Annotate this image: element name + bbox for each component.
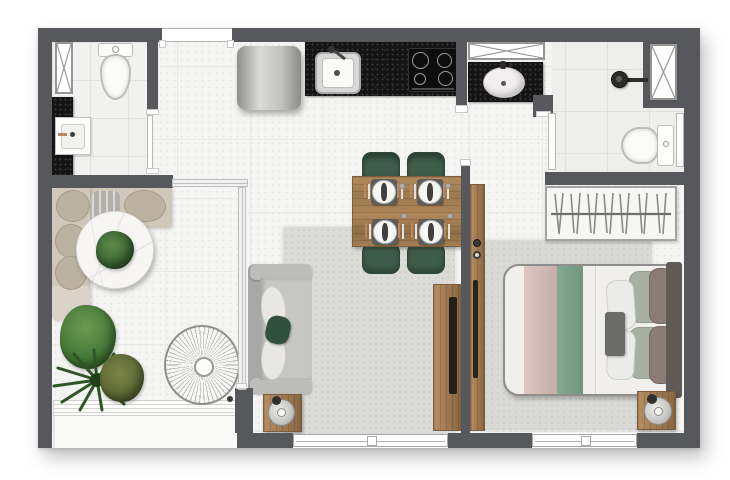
wall-kitchen-end (456, 28, 467, 112)
dining-chair (362, 243, 400, 274)
flush-button (112, 46, 119, 53)
wall-top-left (38, 28, 162, 42)
wardrobe-knob (473, 251, 481, 259)
entry-door-opening (162, 28, 232, 42)
cup (401, 213, 407, 219)
lamp-cap (272, 396, 281, 405)
burner (438, 71, 453, 86)
flush-button-2 (663, 141, 669, 147)
wall-balcony-top (38, 175, 173, 188)
glass-partition-v (238, 187, 246, 390)
balcony-ledge (53, 416, 237, 448)
bath2-service-door (676, 113, 684, 167)
lamp-core (654, 407, 663, 416)
bedroom-window (532, 434, 637, 447)
bath1-faucet (58, 133, 67, 136)
cup (399, 183, 405, 189)
burner (414, 73, 426, 85)
lamp-core (277, 408, 286, 417)
bath1-door (147, 115, 153, 169)
closet-rack (545, 186, 677, 241)
wall-bath2-bottom (545, 172, 684, 185)
cutlery (417, 179, 443, 205)
floor-plan (0, 0, 730, 480)
wall-stub-balcony (235, 388, 253, 433)
door-jamb (159, 40, 166, 48)
wire-lounge-chair (164, 325, 240, 405)
sofa-armrest (250, 378, 312, 394)
cup (447, 213, 453, 219)
vent-shaft-2 (650, 44, 677, 100)
wardrobe-slot (473, 280, 478, 378)
cooktop-controls (412, 88, 454, 90)
sink-drain (334, 70, 340, 76)
shower-arm (626, 78, 648, 82)
cutlery (372, 219, 398, 245)
vanity-faucet (500, 61, 506, 69)
tv-screen-slot (449, 297, 457, 394)
bath1-drain (70, 132, 75, 137)
dining-chair (407, 243, 445, 274)
headboard (666, 262, 682, 398)
living-window (293, 434, 448, 447)
burner (437, 53, 452, 68)
cutlery (371, 179, 397, 205)
bath2-door (548, 113, 556, 170)
wall-left (38, 28, 52, 448)
glass-cap (236, 383, 247, 389)
toilet2-bowl (621, 127, 659, 164)
shower-head-center (616, 76, 622, 82)
table-plant (96, 231, 134, 269)
wall-cap (460, 159, 471, 166)
potted-plant-olive (100, 354, 144, 402)
bed-stripe-green (557, 266, 583, 394)
burner (412, 52, 429, 69)
sheet-fold-line (595, 266, 596, 394)
wall-right (684, 28, 700, 448)
door-jamb (146, 168, 159, 174)
glass-partition-h (172, 179, 248, 187)
wall-bottom-living (237, 433, 293, 448)
wall-bath1 (147, 28, 158, 113)
wall-bottom-center (448, 433, 532, 448)
door-jamb (227, 40, 234, 48)
vent-duct (468, 42, 545, 60)
vanity-faucet-knob (509, 63, 513, 67)
vanity-drain (501, 81, 506, 86)
cup (445, 183, 451, 189)
cutlery (418, 219, 444, 245)
chair-foot-dot (227, 396, 233, 402)
vent-shaft (55, 42, 73, 94)
wall-divider (461, 165, 470, 433)
wardrobe-knob (473, 239, 481, 247)
door-jamb (455, 105, 468, 113)
bed-tray (605, 312, 625, 356)
refrigerator (237, 46, 301, 110)
bed-stripe-pink (524, 266, 557, 394)
wall-bottom-bedroom (637, 433, 684, 448)
lamp-cap (647, 394, 657, 404)
